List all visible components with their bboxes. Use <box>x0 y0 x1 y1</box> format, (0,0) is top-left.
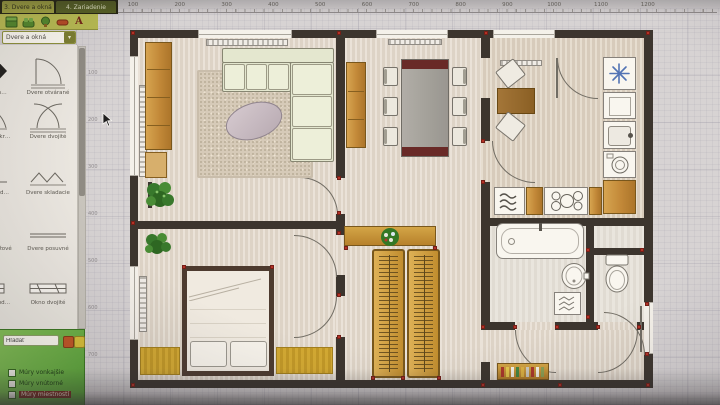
text-tool-icon[interactable]: A <box>72 16 86 28</box>
library-item-window-single[interactable]: Okno jednod… <box>0 262 18 314</box>
library-item-window-double[interactable]: Okno dvojité <box>20 262 76 314</box>
stove[interactable] <box>544 187 588 215</box>
library-item-line-thick[interactable]: Dvere garážové <box>0 208 18 260</box>
plant-tool-icon[interactable] <box>38 16 52 28</box>
kitchen-sink[interactable] <box>603 121 636 149</box>
edit-icon[interactable] <box>63 336 74 348</box>
dining-chair[interactable] <box>452 127 467 146</box>
library-item-door-double[interactable]: Dvere dvojité <box>20 96 76 148</box>
corner-marker[interactable] <box>433 246 437 250</box>
kitchen-counter[interactable] <box>603 92 636 119</box>
wardrobe[interactable] <box>407 249 440 378</box>
corner-marker[interactable] <box>337 293 341 297</box>
door-gap <box>481 58 490 98</box>
corner-marker[interactable] <box>645 302 649 306</box>
pillow <box>190 341 227 367</box>
checkbox-icon[interactable] <box>8 391 16 399</box>
corner-marker[interactable] <box>401 376 405 380</box>
radiator-bedroom[interactable] <box>139 276 147 332</box>
chevron-down-icon[interactable]: ▾ <box>64 32 75 43</box>
wall-entry-l[interactable] <box>481 362 490 380</box>
library-item-label: Dvere dvojkr… <box>0 134 18 141</box>
library-item-fold-double[interactable]: Dvere skladacie <box>20 152 76 204</box>
fold-double-icon <box>28 152 68 190</box>
corner-marker[interactable] <box>481 383 485 387</box>
layer-checkbox-list: Múry vonkajšieMúry vnútornéMúry miestnos… <box>0 367 84 400</box>
window-bedroom-left[interactable] <box>130 266 138 340</box>
corner-marker[interactable] <box>555 325 559 329</box>
delete-tool-icon[interactable] <box>55 16 69 28</box>
door-gap <box>481 141 490 182</box>
corner-marker[interactable] <box>371 376 375 380</box>
corner-marker[interactable] <box>131 31 135 35</box>
hall-shelf[interactable] <box>344 226 436 246</box>
plant-living[interactable] <box>144 180 176 212</box>
corner-marker[interactable] <box>646 383 650 387</box>
cabinet-tool-icon[interactable] <box>4 16 18 28</box>
tab-doors-windows[interactable]: 3. Dvere a okná <box>2 1 54 13</box>
corner-marker[interactable] <box>646 31 650 35</box>
shoe-cabinet[interactable] <box>497 363 549 380</box>
sofa-tool-icon[interactable] <box>21 16 35 28</box>
wall-bottom[interactable] <box>130 380 653 388</box>
corner-marker[interactable] <box>586 315 590 319</box>
kitchen-cabinet[interactable] <box>603 180 636 214</box>
window-dining-top[interactable] <box>376 30 448 38</box>
scrollbar-thumb[interactable] <box>79 48 85 196</box>
washbasin[interactable] <box>560 261 590 291</box>
corner-marker[interactable] <box>558 383 562 387</box>
entrance-door-leaf[interactable] <box>640 306 642 352</box>
window-double-icon <box>28 262 68 300</box>
wall-unit[interactable] <box>145 42 172 150</box>
corner-marker[interactable] <box>484 31 488 35</box>
library-item-label: Okno dvojité <box>20 300 76 307</box>
corner-marker[interactable] <box>344 246 348 250</box>
window-single-icon <box>0 262 10 300</box>
kitchen-cabinet[interactable] <box>526 187 543 215</box>
wall-kitchen-l1[interactable] <box>481 38 490 58</box>
wall-bath-entry-2[interactable] <box>555 322 598 330</box>
sofa-back[interactable] <box>222 48 334 63</box>
fold-single-icon <box>0 152 10 190</box>
tool-row: A <box>0 14 98 30</box>
corner-marker[interactable] <box>481 325 485 329</box>
corner-marker[interactable] <box>481 180 485 184</box>
laundry-basket[interactable] <box>554 292 581 315</box>
door-single-icon <box>28 52 68 90</box>
door-gap <box>481 330 490 362</box>
corner-marker[interactable] <box>645 352 649 356</box>
line-thick-icon <box>0 208 10 246</box>
radiator-dining[interactable] <box>388 39 442 45</box>
bedside-rug[interactable] <box>140 347 180 375</box>
tv-board[interactable] <box>145 152 167 178</box>
layer-label: Múry miestností <box>19 391 71 398</box>
library-item-label: Dvere sklad… <box>0 190 18 197</box>
dining-chair[interactable] <box>383 127 398 146</box>
category-dropdown-value: Dvere a okná <box>3 34 64 41</box>
library-item-door-double-l[interactable]: Dvere dvojkr… <box>0 96 18 148</box>
door-gap <box>336 296 345 337</box>
sofa-seat[interactable] <box>222 62 291 92</box>
window-living-left[interactable] <box>130 56 138 176</box>
corner-marker[interactable] <box>586 248 590 252</box>
tab-furnishing[interactable]: 4. Zariadenie <box>56 1 116 13</box>
corner-marker[interactable] <box>481 139 485 143</box>
bed[interactable] <box>182 266 274 376</box>
corner-marker[interactable] <box>337 335 341 339</box>
corner-marker[interactable] <box>182 265 186 269</box>
corner-marker[interactable] <box>337 211 341 215</box>
wall-kitchen-l3[interactable] <box>481 182 490 330</box>
kitchen-table[interactable] <box>497 88 535 114</box>
wardrobe[interactable] <box>372 249 405 378</box>
checkbox-icon[interactable] <box>8 369 16 377</box>
wall-bath-entry-1[interactable] <box>481 322 515 330</box>
sideboard[interactable] <box>346 62 366 148</box>
dishwasher[interactable] <box>494 187 525 215</box>
door-double-icon <box>28 96 68 134</box>
dining-table[interactable] <box>401 59 449 157</box>
corner-marker[interactable] <box>513 325 517 329</box>
door-double-l-icon <box>0 96 10 134</box>
radiator-living[interactable] <box>206 39 288 46</box>
library-item-label: Dvere skladacie <box>20 190 76 197</box>
mouse-cursor-icon <box>102 112 113 131</box>
corner-marker[interactable] <box>596 325 600 329</box>
layer-label: Múry vnútorné <box>19 380 63 387</box>
corner-marker[interactable] <box>640 248 644 252</box>
line-thin-icon <box>28 208 68 246</box>
dining-chair[interactable] <box>452 67 467 86</box>
library-item-label: Dvere posuvné <box>20 246 76 253</box>
entrance-door-opening[interactable] <box>644 302 653 354</box>
library-item-label: Okno jednod… <box>0 300 18 307</box>
wall-living-dining[interactable] <box>336 38 345 178</box>
layer-checkbox-row[interactable]: Múry vnútorné <box>0 378 84 389</box>
add-icon[interactable] <box>74 336 85 348</box>
tab-label: 4. Zariadenie <box>66 4 106 11</box>
diamond-icon <box>0 52 10 90</box>
checkbox-icon[interactable] <box>8 380 16 388</box>
library-item-fold-single[interactable]: Dvere sklad… <box>0 152 18 204</box>
dining-chair[interactable] <box>452 97 467 116</box>
door-gap <box>515 322 555 330</box>
dining-chair[interactable] <box>383 97 398 116</box>
app-window: 100200300400500600700800900100011001200 … <box>0 0 720 405</box>
layer-checkbox-row[interactable]: Múry miestností <box>0 389 84 400</box>
window-kitchen-top[interactable] <box>493 30 555 38</box>
bedside-rug[interactable] <box>276 347 333 374</box>
search-input[interactable] <box>3 335 59 346</box>
corner-marker[interactable] <box>131 221 135 225</box>
library-panel: Dvere vch…Dvere otváranéDvere dvojkr…Dve… <box>0 45 78 329</box>
corner-marker[interactable] <box>337 231 341 235</box>
corner-marker[interactable] <box>131 383 135 387</box>
corner-marker[interactable] <box>437 376 441 380</box>
tab-label: 3. Dvere a okná <box>4 4 52 11</box>
wall-living-bedroom[interactable] <box>138 221 336 229</box>
corner-marker[interactable] <box>337 176 341 180</box>
corner-marker[interactable] <box>637 325 641 329</box>
pillow <box>230 341 267 367</box>
wall-bedroom-r3[interactable] <box>336 337 345 380</box>
layer-checkbox-row[interactable]: Múry vonkajšie <box>0 367 84 378</box>
library-item-label: Dvere dvojité <box>20 134 76 141</box>
window-living-top[interactable] <box>198 30 292 38</box>
kitchen-cabinet[interactable] <box>589 187 602 215</box>
wall-right-upper[interactable] <box>644 30 653 304</box>
corner-marker[interactable] <box>337 31 341 35</box>
plant-bedroom[interactable] <box>142 231 174 259</box>
floorplan <box>0 0 720 405</box>
library-item-label: Dvere garážové <box>0 246 18 253</box>
toilet[interactable] <box>602 254 632 294</box>
library-item-line-thin[interactable]: Dvere posuvné <box>20 208 76 260</box>
sofa-chaise[interactable] <box>290 62 334 162</box>
washing-machine[interactable] <box>603 151 636 178</box>
dining-chair[interactable] <box>383 67 398 86</box>
corner-marker[interactable] <box>270 265 274 269</box>
layer-label: Múry vonkajšie <box>19 369 64 376</box>
fridge[interactable] <box>603 57 636 90</box>
category-dropdown[interactable]: Dvere a okná ▾ <box>2 31 76 44</box>
wall-kitchen-l2[interactable] <box>481 98 490 141</box>
layers-panel: Múry vonkajšieMúry vnútornéMúry miestnos… <box>0 329 85 405</box>
bathtub[interactable] <box>496 223 584 259</box>
